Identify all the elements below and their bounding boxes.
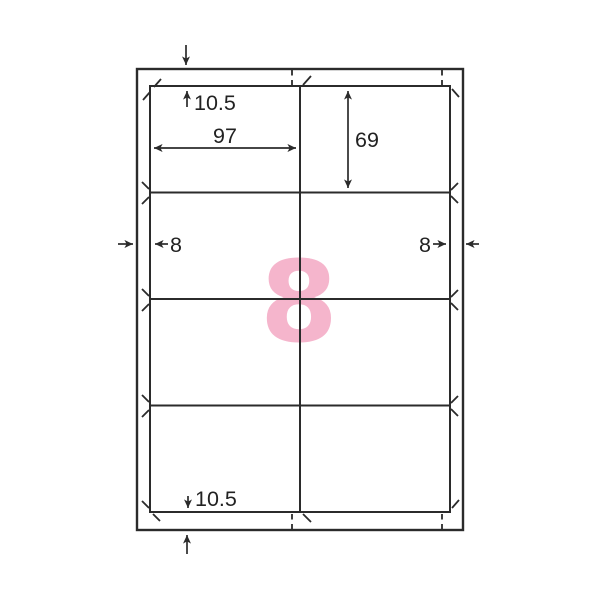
edge-mark-right-row1	[451, 183, 458, 203]
label-width-value: 97	[213, 124, 237, 148]
bottom-margin-value: 10.5	[195, 487, 237, 511]
edge-mark-left-row1	[142, 182, 149, 204]
label-height-value: 69	[355, 128, 379, 152]
label-sheet-diagram: 8	[0, 0, 600, 600]
top-margin-value: 10.5	[194, 91, 236, 115]
corner-mark-bottom-center	[303, 514, 311, 522]
edge-mark-right-row3	[451, 396, 458, 416]
right-margin-value: 8	[419, 233, 431, 257]
corner-mark-top-center	[303, 76, 311, 85]
edge-mark-left-row3	[142, 395, 149, 417]
corner-mark-top-left	[143, 79, 161, 100]
corner-mark-top-right	[452, 89, 459, 97]
edge-mark-left-row2	[142, 289, 149, 311]
sheet-structure	[137, 69, 463, 530]
edge-mark-right-row2	[451, 290, 458, 310]
left-margin-value: 8	[170, 233, 182, 257]
corner-mark-bottom-right	[452, 500, 459, 508]
label-layout-drawing: 8	[0, 0, 600, 600]
